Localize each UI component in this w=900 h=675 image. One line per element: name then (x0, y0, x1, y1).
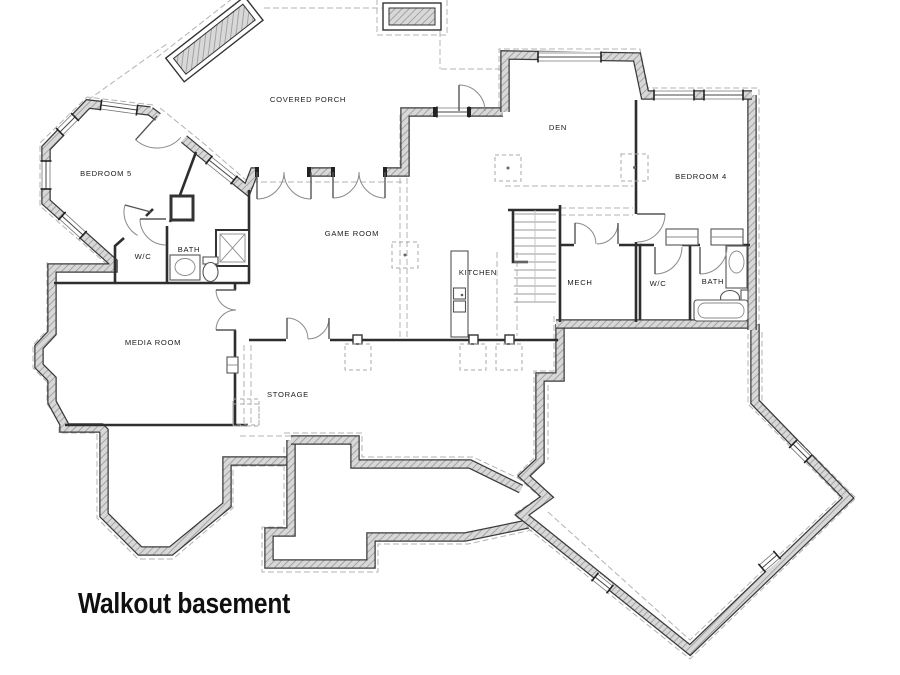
bathtub (694, 300, 748, 321)
staircase (514, 210, 556, 302)
porch-pillars (166, 0, 441, 82)
room-label-bedroom5: BEDROOM 5 (80, 169, 132, 178)
exterior-wall (269, 440, 528, 564)
room-label-kitchen: KITCHEN (459, 268, 497, 277)
exterior-wall (505, 55, 752, 112)
door-arc (333, 172, 359, 198)
door-arc (287, 318, 308, 339)
room-label-mech: MECH (567, 278, 592, 287)
door-arc (700, 247, 727, 274)
door-arc (136, 137, 181, 148)
toilet (203, 257, 218, 282)
floor-plan-page: BEDROOM 5 W/C BATH COVERED PORCH GAME RO… (0, 0, 900, 675)
door-arc (597, 223, 618, 244)
room-label-den: DEN (549, 123, 567, 132)
vanity-sink (170, 255, 200, 280)
door-arc (284, 172, 311, 199)
room-label-covered-porch: COVERED PORCH (270, 95, 346, 104)
exterior-wall-hatch (269, 440, 528, 564)
room-label-game-room: GAME ROOM (325, 229, 379, 238)
column-markers (233, 154, 648, 425)
door-arc (308, 318, 329, 339)
door-arc (216, 310, 236, 330)
room-label-storage: STORAGE (267, 390, 309, 399)
vanity-sink (726, 246, 747, 288)
plan-title: Walkout basement (78, 588, 291, 620)
room-label-bath-right: BATH (702, 277, 725, 286)
storage-pad (233, 404, 259, 426)
room-label-wc-right: W/C (650, 279, 667, 288)
media-equipment (227, 357, 238, 373)
door-arc (637, 214, 665, 242)
wall-posts (255, 107, 514, 344)
shower (216, 230, 249, 266)
door-leaf (136, 116, 157, 140)
exterior-wall-hatch (291, 440, 521, 489)
fixtures (170, 196, 748, 426)
door-leaf (125, 205, 151, 212)
exterior-wall-hatch (522, 324, 848, 650)
room-label-media-room: MEDIA ROOM (125, 338, 181, 347)
door-arc (140, 219, 166, 245)
door-arc (216, 290, 236, 310)
door-arc (359, 172, 385, 198)
floor-plan-canvas: BEDROOM 5 W/C BATH COVERED PORCH GAME RO… (0, 0, 900, 675)
closet (171, 196, 193, 220)
exterior-wall-hatch (505, 55, 752, 112)
door-arc (257, 172, 284, 199)
exterior-walls (39, 55, 848, 650)
exterior-wall-hatch (150, 111, 503, 190)
kitchen-counter (451, 251, 468, 337)
room-label-bedroom4: BEDROOM 4 (675, 172, 727, 181)
door-arc (655, 247, 682, 274)
exterior-wall (522, 324, 848, 650)
room-label-bath-left: BATH (178, 245, 201, 254)
door-arc (124, 205, 138, 235)
room-label-wc-left: W/C (135, 252, 152, 261)
door-arc (575, 223, 596, 244)
closet (666, 229, 743, 245)
